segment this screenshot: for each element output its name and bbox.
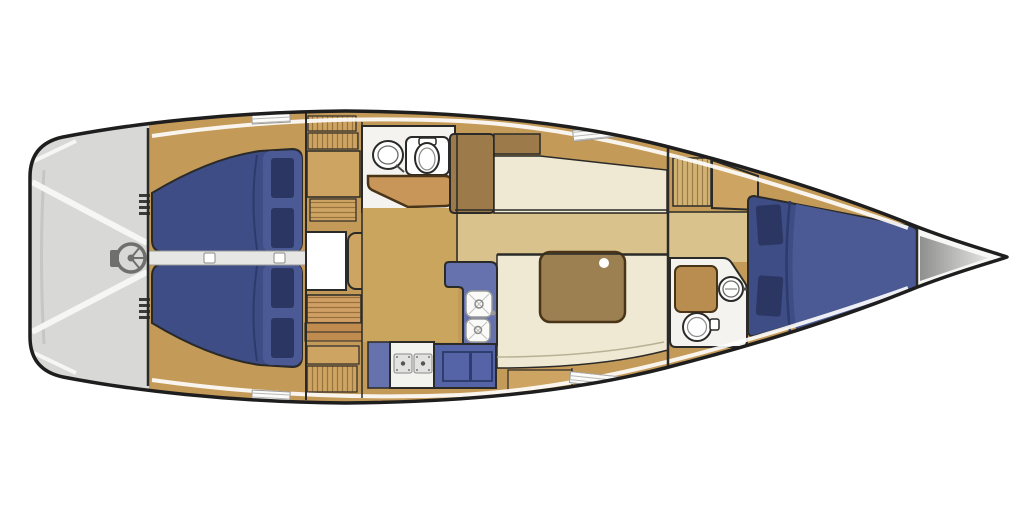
boat-floor-plan bbox=[0, 0, 1024, 512]
pillow bbox=[271, 158, 294, 198]
vanity-counter bbox=[675, 266, 717, 312]
aft-head bbox=[362, 126, 455, 212]
table-cup-holder bbox=[599, 258, 609, 268]
saloon-floor bbox=[362, 208, 458, 342]
pillow bbox=[756, 275, 784, 317]
stove-icon bbox=[390, 342, 434, 388]
dinette-table bbox=[540, 252, 625, 322]
galley-cabinet-blue bbox=[434, 344, 496, 388]
galley-counter-aft bbox=[368, 342, 390, 388]
pillow bbox=[271, 268, 294, 308]
wheel-hub bbox=[128, 255, 135, 262]
bow-deck-mark bbox=[863, 309, 885, 318]
aft-corridor bbox=[148, 251, 308, 265]
pillow bbox=[271, 318, 294, 358]
engine-box bbox=[306, 232, 346, 290]
bow-deck-mark bbox=[863, 193, 885, 202]
floor-plan-svg bbox=[0, 0, 1024, 512]
faucet-icon bbox=[491, 311, 496, 316]
forward-head bbox=[670, 258, 747, 347]
door-handle bbox=[274, 253, 285, 263]
wardrobe bbox=[307, 151, 360, 197]
lockers-bottom bbox=[307, 346, 359, 392]
pillow bbox=[271, 208, 294, 248]
forward-cabin-floor bbox=[669, 212, 752, 262]
overhead-locker bbox=[494, 134, 540, 154]
toilet-icon bbox=[406, 137, 449, 175]
door-handle bbox=[204, 253, 215, 263]
saloon-floor-forward bbox=[458, 214, 668, 255]
pillow bbox=[756, 204, 784, 246]
companionway-ladder bbox=[305, 295, 363, 341]
